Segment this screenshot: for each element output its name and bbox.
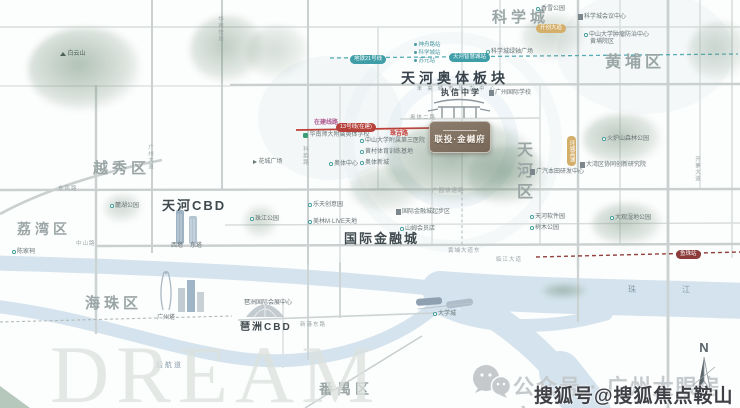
project-name: 联投·金樾府 xyxy=(434,133,485,145)
dot-icon xyxy=(12,250,16,254)
plate-subtitle: 未 来 城 市 活 力 中 心 xyxy=(417,85,497,92)
poi-label: 奥体中心 xyxy=(329,161,358,167)
road-label: 广州大道 xyxy=(146,144,154,170)
station-dot-icon xyxy=(414,59,417,62)
line-pill-label: 环城高速 xyxy=(567,136,576,166)
poi-label: 火炉山森林公园 xyxy=(602,136,649,142)
bldg-icon xyxy=(578,14,583,20)
road-label: 奥体二路 xyxy=(410,113,436,121)
line-pill-label: 开创大道 xyxy=(536,24,566,33)
map-note: 珠吉路 xyxy=(390,128,408,137)
dot-icon xyxy=(602,137,606,141)
poi-label: 花城广场 xyxy=(253,159,283,165)
road-label: 黄埔大道东 xyxy=(448,246,481,254)
district-label: 海珠区 xyxy=(85,292,142,313)
sohu-watermark-text: 搜狐号@搜狐焦点鞍山站 xyxy=(534,381,740,408)
river-label: 江 xyxy=(682,284,692,295)
road-label: 华南快速 xyxy=(216,16,224,42)
north-label: N xyxy=(688,340,720,355)
road-label: 临江大道 xyxy=(496,255,522,263)
canton-tower-skyline-illustration xyxy=(156,270,208,312)
dot-icon xyxy=(530,215,534,219)
poi-label: 乐天创意园 xyxy=(308,202,343,208)
area-label: 天河CBD xyxy=(162,195,226,214)
district-label: 荔湾区 xyxy=(17,219,71,239)
mtn-icon xyxy=(60,52,66,56)
road-label: 新港东路 xyxy=(300,320,326,328)
dot-icon xyxy=(360,150,364,154)
line-pill-label: 天河智慧城站 xyxy=(449,53,490,62)
district-label: 越秀区 xyxy=(93,157,150,178)
line-pill-label: 地铁21号线 xyxy=(350,55,386,64)
poi-label: 黄埔院区 xyxy=(590,39,614,45)
poi-label: 琶洲国际会展中心 xyxy=(244,300,292,306)
bldg-icon xyxy=(489,90,494,96)
road-label: 东风路 xyxy=(58,184,78,192)
poi-label: 广州国际学校 xyxy=(489,90,531,96)
dot-icon xyxy=(536,7,540,11)
district-label: 黄埔区 xyxy=(605,48,665,72)
metro-icon xyxy=(303,133,308,138)
poi-label: 大观湿地公园 xyxy=(610,215,651,221)
poi-label: 奥体新城 xyxy=(360,160,389,166)
road-label: 开萝大道 xyxy=(693,156,701,182)
dot-icon xyxy=(329,162,333,166)
station-dot-icon xyxy=(414,43,417,46)
metro-station-label: 苏元站 xyxy=(414,56,435,64)
bldg-icon xyxy=(396,209,401,215)
bldg-icon xyxy=(530,169,535,175)
map-note: 在建线路 xyxy=(314,117,338,126)
poi-label: 广州塔 xyxy=(157,315,175,321)
dot-icon xyxy=(610,216,614,220)
poi-label: 麓湖公园 xyxy=(110,203,139,209)
dream-watermark: DREAM xyxy=(50,334,381,408)
station-dot-icon xyxy=(414,51,417,54)
dot-icon xyxy=(110,204,114,208)
road-label: 科韵路 xyxy=(301,146,309,166)
dot-icon xyxy=(400,227,404,231)
poi-label: 珠江公园 xyxy=(250,216,279,222)
poi-label: 国际金融城起步区 xyxy=(396,209,450,215)
river-label: 珠 xyxy=(628,284,638,295)
poi-label: 科学城会议中心 xyxy=(578,14,626,20)
poi-label: 山姆会员店 xyxy=(400,226,435,232)
poi-label: 西塔 xyxy=(171,243,183,249)
dot-icon xyxy=(308,203,312,207)
project-ornament xyxy=(443,130,477,131)
road-label: 中山路 xyxy=(76,239,96,247)
poi-label: 白云山 xyxy=(60,51,86,57)
dot-icon xyxy=(433,312,437,316)
poi-label: 中山大学附属第三医院 xyxy=(360,138,425,144)
poi-label: 香雪公园 xyxy=(536,6,565,12)
metro-station-label: 神舟路站 xyxy=(414,40,441,48)
metro-station-label: 科学城站 xyxy=(414,48,441,56)
poi-label: 大学城 xyxy=(433,311,456,317)
dot-icon xyxy=(250,217,254,221)
dot-icon xyxy=(584,33,588,37)
poi-label: 天河软件园 xyxy=(530,214,565,220)
flag-icon xyxy=(253,160,257,164)
bldg-icon xyxy=(580,162,585,168)
poi-label: 黄村体育训练基地 xyxy=(360,149,413,155)
line-pill-label: 鱼珠站 xyxy=(676,250,701,259)
poi-label: 树木公园 xyxy=(530,225,559,231)
dot-icon xyxy=(360,139,364,143)
wechat-icon xyxy=(470,364,512,400)
poi-label: 科学城绿轴广场 xyxy=(486,49,533,55)
location-map: 执信中学 联投·金樾府 天河奥体板块 未 来 城 市 活 力 中 心 科学城黄埔… xyxy=(0,0,740,408)
poi-label: 大湾区协同创新研究院 xyxy=(580,162,646,168)
dot-icon xyxy=(530,226,534,230)
poi-label: 东塔 xyxy=(190,243,202,249)
poi-label: 陈家祠 xyxy=(12,249,35,255)
dot-icon xyxy=(360,161,364,165)
poi-label: 美林M·LIVE天地 xyxy=(308,219,357,225)
dot-icon xyxy=(308,220,312,224)
corner-logo xyxy=(0,386,30,408)
poi-label: 中山大学肿瘤防治中心 xyxy=(584,32,649,38)
road-label: 广园快速路 xyxy=(432,186,465,194)
poi-label: 广汽本田研发中心 xyxy=(530,169,584,175)
project-marker[interactable]: 联投·金樾府 xyxy=(429,121,491,153)
line-pill-label: 13号线(在建) xyxy=(336,123,376,132)
